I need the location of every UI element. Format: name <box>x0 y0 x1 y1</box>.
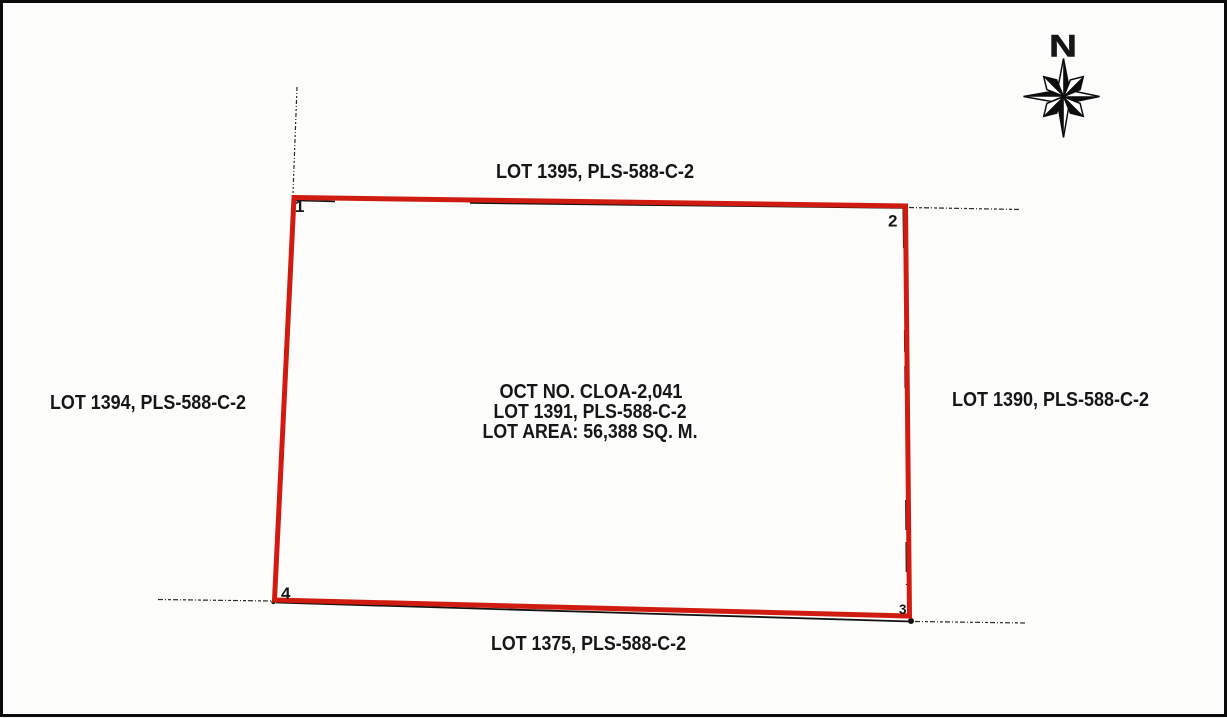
svg-text:LOT 1394, PLS-588-C-2: LOT 1394, PLS-588-C-2 <box>50 392 246 414</box>
svg-text:LOT 1375, PLS-588-C-2: LOT 1375, PLS-588-C-2 <box>491 633 686 655</box>
svg-text:LOT AREA: 56,388 SQ. M.: LOT AREA: 56,388 SQ. M. <box>483 421 698 443</box>
svg-text:4: 4 <box>281 584 291 603</box>
svg-text:LOT 1391, PLS-588-C-2: LOT 1391, PLS-588-C-2 <box>494 401 687 423</box>
svg-text:LOT 1390, PLS-588-C-2: LOT 1390, PLS-588-C-2 <box>952 389 1149 411</box>
svg-text:LOT 1395, PLS-588-C-2: LOT 1395, PLS-588-C-2 <box>496 161 694 183</box>
svg-text:N: N <box>1049 28 1077 64</box>
svg-text:3: 3 <box>899 602 907 617</box>
svg-text:2: 2 <box>888 212 897 231</box>
svg-text:OCT NO. CLOA-2,041: OCT NO. CLOA-2,041 <box>500 381 683 403</box>
svg-text:1: 1 <box>295 197 304 216</box>
